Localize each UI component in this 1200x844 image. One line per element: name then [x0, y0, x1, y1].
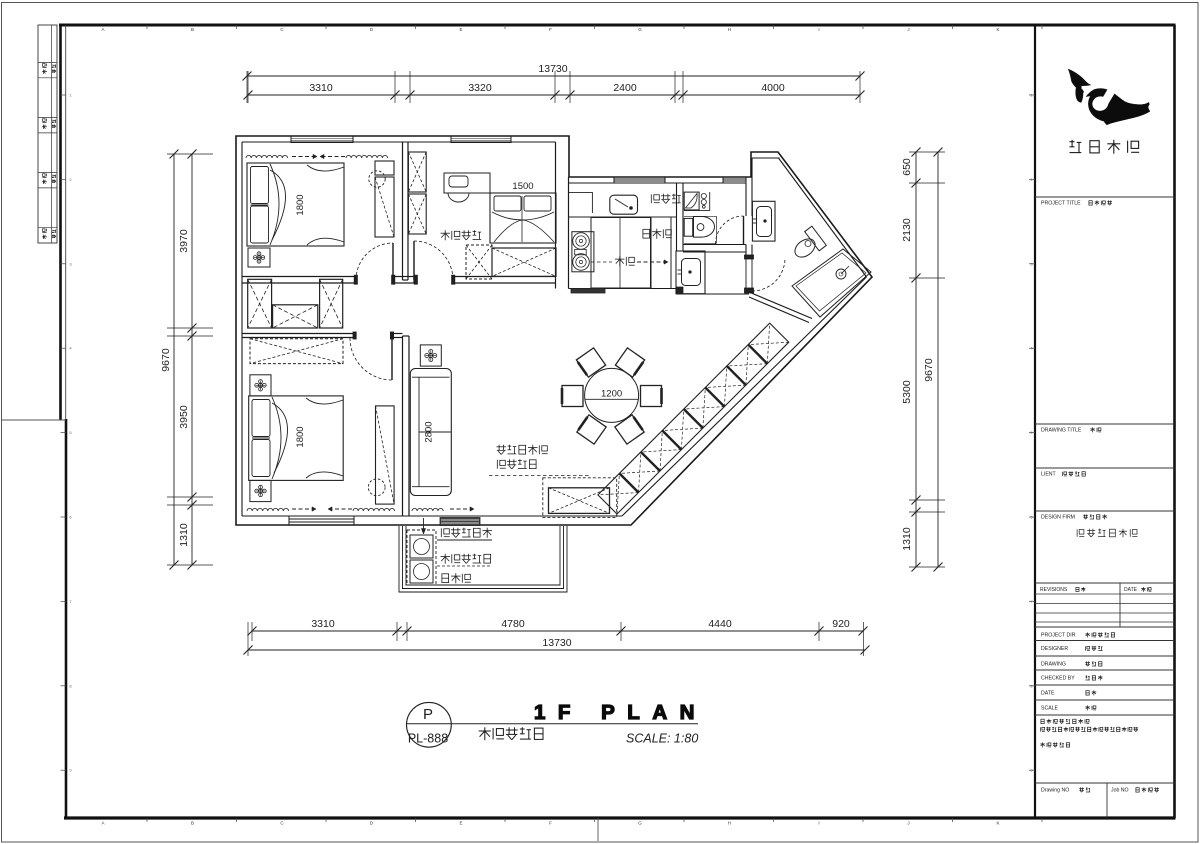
- svg-text:CHECKED BY: CHECKED BY: [1041, 676, 1075, 682]
- svg-text:1F PLAN: 1F PLAN: [534, 701, 707, 724]
- svg-text:I: I: [818, 27, 819, 32]
- svg-text:2400: 2400: [613, 82, 637, 94]
- svg-text:P: P: [423, 706, 433, 723]
- svg-text:3320: 3320: [468, 82, 492, 94]
- svg-text:A: A: [101, 27, 104, 32]
- svg-text:H: H: [728, 27, 731, 32]
- svg-text:H: H: [728, 821, 731, 826]
- svg-text:650: 650: [901, 158, 913, 176]
- svg-text:F: F: [549, 27, 552, 32]
- svg-text:Job NO: Job NO: [1111, 788, 1129, 794]
- svg-text:DATE: DATE: [1041, 691, 1055, 697]
- svg-text:1500: 1500: [512, 181, 533, 192]
- svg-text:DRAWING TITLE: DRAWING TITLE: [1041, 428, 1082, 434]
- svg-text:3310: 3310: [309, 82, 333, 94]
- svg-text:B: B: [191, 27, 194, 32]
- svg-text:1310: 1310: [178, 523, 190, 547]
- svg-text:E: E: [459, 821, 462, 826]
- svg-text:2130: 2130: [901, 218, 913, 242]
- svg-text:J: J: [907, 27, 909, 32]
- svg-text:SCALE: 1:80: SCALE: 1:80: [626, 732, 698, 746]
- svg-text:9670: 9670: [923, 358, 935, 382]
- svg-text:K: K: [996, 27, 999, 32]
- svg-text:3950: 3950: [178, 405, 190, 429]
- svg-text:A: A: [101, 821, 104, 826]
- svg-text:3310: 3310: [311, 618, 335, 630]
- svg-text:I: I: [818, 821, 819, 826]
- svg-text:DATE: DATE: [1124, 587, 1138, 593]
- svg-text:LIENT: LIENT: [1041, 472, 1057, 478]
- svg-text:J: J: [907, 821, 909, 826]
- svg-text:F: F: [549, 821, 552, 826]
- svg-text:K: K: [996, 821, 999, 826]
- svg-text:E: E: [459, 27, 462, 32]
- svg-text:5300: 5300: [901, 380, 913, 404]
- svg-text:PROJECT TITLE: PROJECT TITLE: [1041, 201, 1081, 207]
- svg-text:Drawing NO: Drawing NO: [1041, 788, 1069, 794]
- svg-text:920: 920: [832, 618, 850, 630]
- svg-text:13730: 13730: [542, 637, 571, 649]
- svg-text:PL-888: PL-888: [408, 732, 448, 746]
- svg-text:REVISIONS: REVISIONS: [1040, 587, 1068, 593]
- svg-text:3970: 3970: [178, 229, 190, 253]
- svg-text:DESIGN FIRM: DESIGN FIRM: [1041, 515, 1075, 521]
- svg-text:2800: 2800: [424, 421, 435, 442]
- svg-text:B: B: [191, 821, 194, 826]
- svg-text:G: G: [638, 821, 642, 826]
- svg-text:4780: 4780: [501, 618, 525, 630]
- svg-text:G: G: [638, 27, 642, 32]
- svg-text:13730: 13730: [538, 63, 567, 75]
- svg-text:1200: 1200: [601, 389, 622, 400]
- svg-text:SCALE: SCALE: [1041, 706, 1059, 712]
- svg-text:PROJECT DIR: PROJECT DIR: [1041, 633, 1076, 639]
- svg-text:4000: 4000: [761, 82, 785, 94]
- svg-text:1800: 1800: [295, 194, 306, 215]
- svg-text:1800: 1800: [295, 426, 306, 447]
- svg-text:4440: 4440: [708, 618, 732, 630]
- svg-text:9670: 9670: [160, 348, 172, 372]
- svg-text:DRAWING: DRAWING: [1041, 662, 1066, 668]
- svg-text:1310: 1310: [901, 527, 913, 551]
- svg-text:DESIGNER: DESIGNER: [1041, 646, 1068, 652]
